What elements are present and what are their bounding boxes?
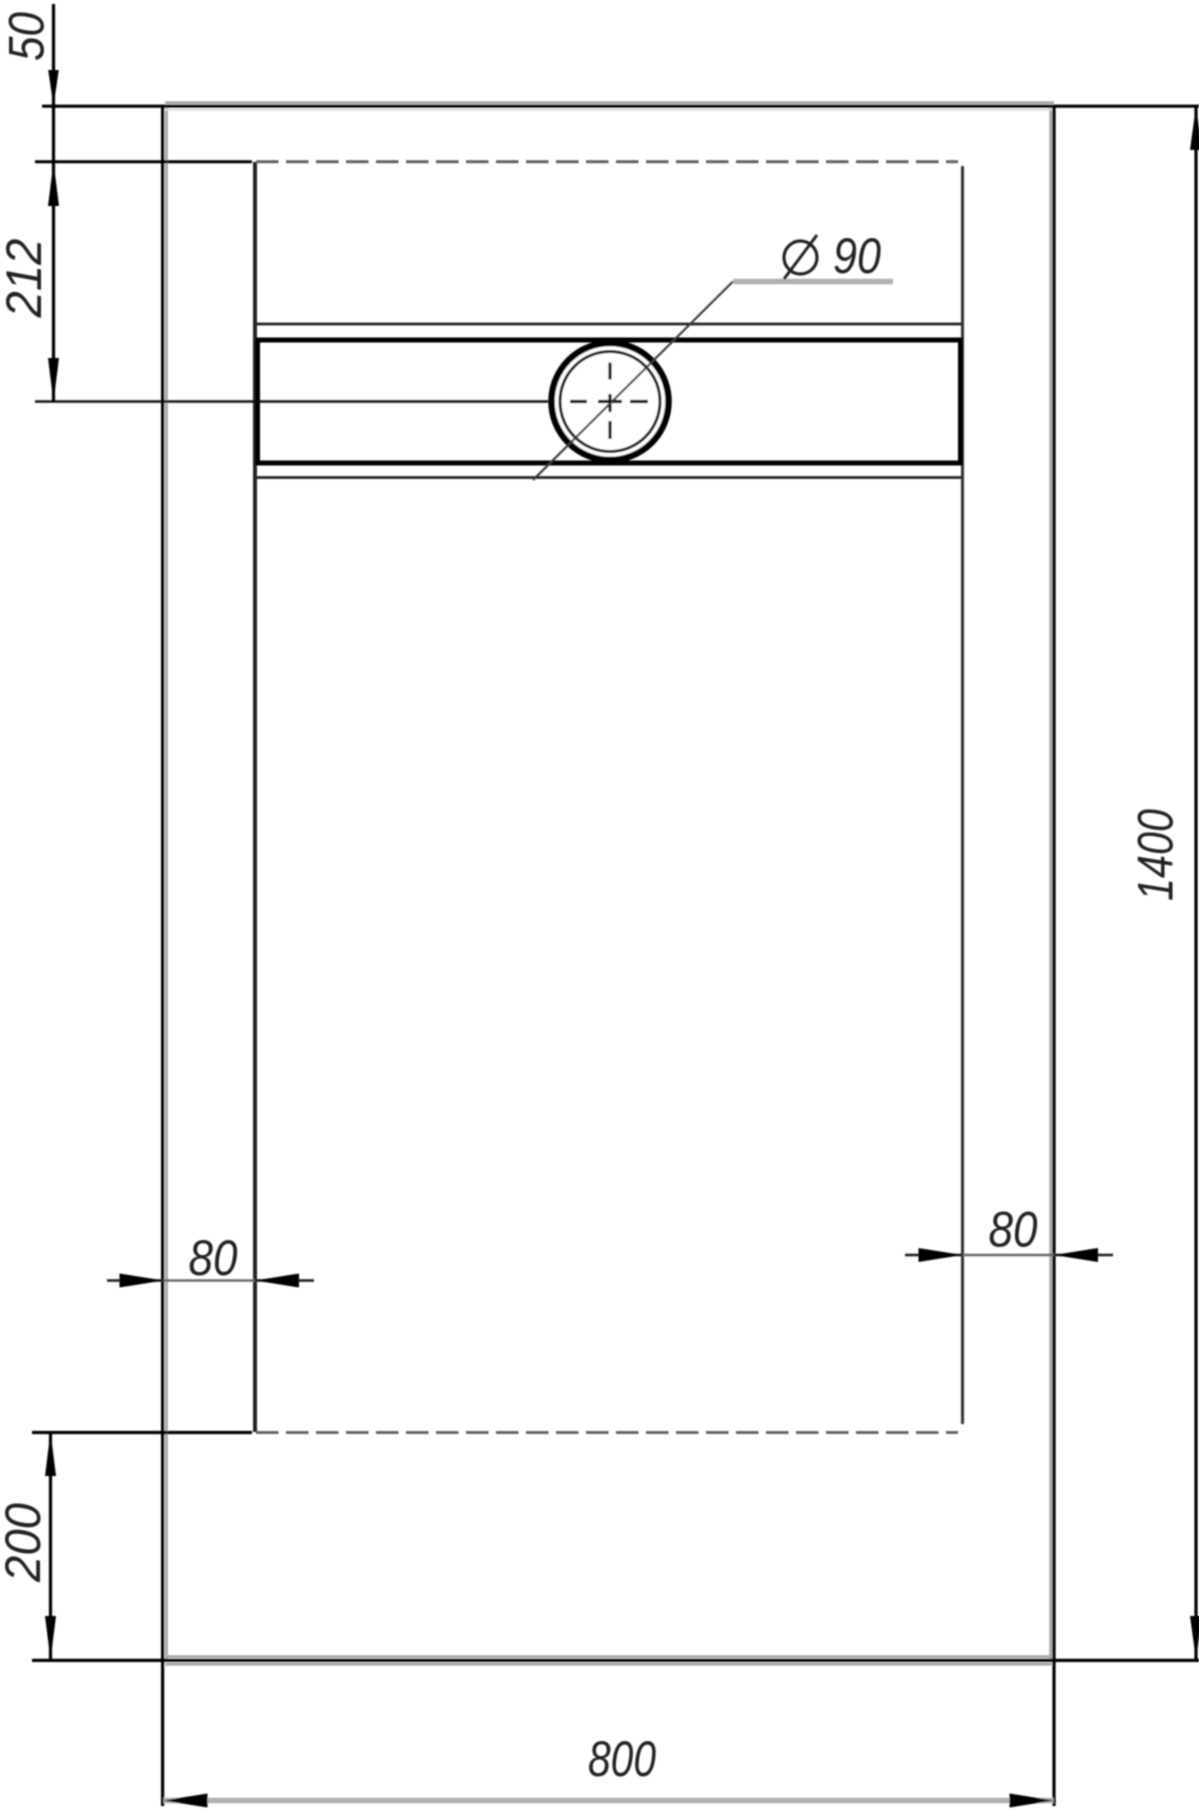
svg-text:80: 80 (989, 1202, 1038, 1258)
svg-text:800: 800 (588, 1731, 656, 1787)
svg-text:50: 50 (0, 12, 55, 61)
svg-text:90: 90 (833, 228, 881, 284)
svg-text:200: 200 (0, 1503, 51, 1583)
svg-text:212: 212 (0, 238, 52, 318)
svg-text:1400: 1400 (1128, 809, 1184, 901)
svg-text:80: 80 (189, 1230, 238, 1286)
